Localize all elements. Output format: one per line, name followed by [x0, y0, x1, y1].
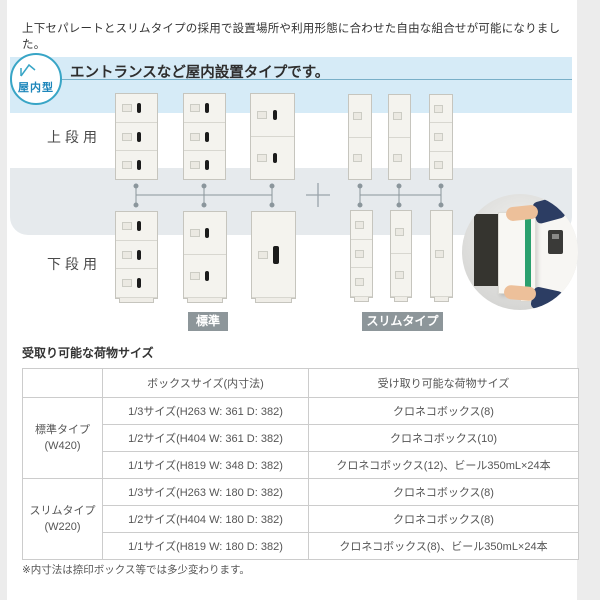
- upper-slim-cabinet-2door: [388, 94, 411, 180]
- door-label-sticker: [434, 161, 443, 169]
- table-row: 1/1サイズ(H819 W: 348 D: 382) クロネコボックス(12)、…: [23, 452, 579, 479]
- cargo-size-cell: クロネコボックス(8): [309, 398, 579, 425]
- table-row: 標準タイプ (W420) 1/3サイズ(H263 W: 361 D: 382) …: [23, 398, 579, 425]
- locker-door: [251, 94, 294, 137]
- box-size-cell: 1/3サイズ(H263 W: 180 D: 382): [103, 479, 309, 506]
- door-label-sticker: [395, 228, 404, 236]
- door-label-sticker: [393, 154, 402, 162]
- cabinet-base: [119, 298, 154, 303]
- door-label-sticker: [122, 104, 132, 112]
- door-label-sticker: [257, 111, 267, 119]
- locker-door: [184, 212, 226, 255]
- cargo-size-table: ボックスサイズ(内寸法) 受け取り可能な荷物サイズ 標準タイプ (W420) 1…: [22, 368, 579, 560]
- box-size-cell: 1/1サイズ(H819 W: 180 D: 382): [103, 533, 309, 560]
- door-lock-slot: [137, 160, 141, 170]
- package-insertion-photo: [462, 194, 578, 310]
- locker-door: [389, 138, 410, 180]
- cabinet-base: [394, 297, 408, 302]
- door-label-sticker: [122, 222, 132, 230]
- door-label-sticker: [393, 112, 402, 120]
- photo-package-box: [498, 212, 536, 294]
- locker-door: [430, 123, 452, 151]
- table-header-row: ボックスサイズ(内寸法) 受け取り可能な荷物サイズ: [23, 369, 579, 398]
- door-label-sticker: [190, 272, 200, 280]
- door-label-sticker: [190, 161, 200, 169]
- group-name: スリムタイプ: [30, 505, 96, 517]
- cabinet-base: [187, 298, 223, 303]
- locker-door: [430, 95, 452, 123]
- door-label-sticker: [435, 250, 444, 258]
- lower-slim-cabinet-1door: [430, 210, 453, 298]
- header-cargo-size: 受け取り可能な荷物サイズ: [309, 369, 579, 398]
- locker-door: [116, 151, 157, 179]
- locker-door: [389, 95, 410, 138]
- page-left-margin: [0, 0, 7, 600]
- upper-slim-cabinet-3door: [429, 94, 453, 180]
- header-type: [23, 369, 103, 398]
- locker-door: [184, 123, 225, 152]
- table-row: 1/2サイズ(H404 W: 361 D: 382) クロネコボックス(10): [23, 425, 579, 452]
- door-label-sticker: [395, 271, 404, 279]
- indoor-type-badge: 屋内型: [10, 53, 62, 105]
- door-label-sticker: [355, 221, 364, 229]
- locker-door: [430, 152, 452, 179]
- table-row: 1/2サイズ(H404 W: 180 D: 382) クロネコボックス(8): [23, 506, 579, 533]
- locker-door: [351, 211, 372, 240]
- lower-slim-cabinet-3door: [350, 210, 373, 298]
- locker-door: [349, 138, 371, 180]
- upper-slim-cabinet-2door: [348, 94, 372, 180]
- locker-door: [184, 255, 226, 298]
- group-slim-cell: スリムタイプ (W220): [23, 479, 103, 560]
- door-lock-slot: [137, 103, 141, 113]
- door-lock-slot: [205, 132, 209, 142]
- door-label-sticker: [190, 229, 200, 237]
- intro-text: 上下セパレートとスリムタイプの採用で設置場所や利用形態に合わせた自由な組合せが可…: [22, 20, 578, 52]
- door-label-sticker: [190, 133, 200, 141]
- lower-slim-cabinet-2door: [390, 210, 412, 298]
- door-lock-slot: [137, 278, 141, 288]
- door-lock-slot: [137, 132, 141, 142]
- door-lock-slot: [273, 246, 279, 264]
- box-size-cell: 1/2サイズ(H404 W: 361 D: 382): [103, 425, 309, 452]
- cabinet-base: [255, 298, 292, 303]
- cargo-size-cell: クロネコボックス(8)、ビール350mL×24本: [309, 533, 579, 560]
- door-label-sticker: [355, 250, 364, 258]
- photo-hand: [503, 285, 536, 302]
- door-lock-slot: [205, 103, 209, 113]
- door-label-sticker: [258, 251, 268, 259]
- section-title-underline: [62, 79, 572, 80]
- door-label-sticker: [122, 251, 132, 259]
- door-label-sticker: [434, 105, 443, 113]
- connector-lines: [100, 180, 480, 212]
- door-label-sticker: [353, 154, 362, 162]
- locker-door: [351, 268, 372, 297]
- locker-door: [116, 94, 157, 123]
- door-label-sticker: [355, 278, 364, 286]
- door-label-sticker: [122, 279, 132, 287]
- house-roof-icon: [19, 62, 41, 78]
- door-label-sticker: [190, 104, 200, 112]
- plus-icon: [306, 183, 330, 207]
- standard-type-badge: 標準: [188, 312, 228, 331]
- indoor-type-badge-label: 屋内型: [12, 79, 60, 95]
- box-size-cell: 1/3サイズ(H263 W: 361 D: 382): [103, 398, 309, 425]
- door-lock-slot: [273, 110, 277, 120]
- door-label-sticker: [122, 133, 132, 141]
- photo-keypad: [548, 230, 563, 254]
- cabinet-base: [354, 297, 369, 302]
- lower-row-label: 下段用: [47, 254, 101, 274]
- door-label-sticker: [353, 112, 362, 120]
- cabinet-base: [434, 297, 449, 302]
- locker-door: [431, 211, 452, 297]
- door-lock-slot: [205, 271, 209, 281]
- cargo-size-cell: クロネコボックス(12)、ビール350mL×24本: [309, 452, 579, 479]
- door-label-sticker: [434, 133, 443, 141]
- door-label-sticker: [257, 154, 267, 162]
- header-box-size: ボックスサイズ(内寸法): [103, 369, 309, 398]
- upper-row-label: 上段用: [47, 127, 101, 147]
- cargo-size-cell: クロネコボックス(8): [309, 479, 579, 506]
- table-footnote: ※内寸法は捺印ボックス等では多少変わります。: [22, 562, 250, 577]
- group-standard-cell: 標準タイプ (W420): [23, 398, 103, 479]
- locker-door: [391, 211, 411, 254]
- door-lock-slot: [205, 228, 209, 238]
- upper-standard-cabinet-3door: [115, 93, 158, 180]
- box-size-cell: 1/2サイズ(H404 W: 180 D: 382): [103, 506, 309, 533]
- locker-door: [116, 269, 157, 298]
- group-width: (W220): [44, 521, 80, 533]
- locker-door: [351, 240, 372, 269]
- group-width: (W420): [44, 440, 80, 452]
- locker-door: [184, 94, 225, 123]
- locker-door: [116, 241, 157, 270]
- locker-door: [116, 123, 157, 152]
- table-row: スリムタイプ (W220) 1/3サイズ(H263 W: 180 D: 382)…: [23, 479, 579, 506]
- door-lock-slot: [205, 160, 209, 170]
- group-name: 標準タイプ: [35, 424, 90, 436]
- lower-standard-cabinet-2door: [183, 211, 227, 299]
- upper-standard-cabinet-3door: [183, 93, 226, 180]
- locker-door: [391, 254, 411, 297]
- lower-standard-cabinet-3door: [115, 211, 158, 299]
- cargo-size-cell: クロネコボックス(10): [309, 425, 579, 452]
- door-lock-slot: [137, 221, 141, 231]
- lower-standard-cabinet-1door: [251, 211, 296, 299]
- locker-door: [349, 95, 371, 138]
- door-lock-slot: [273, 153, 277, 163]
- photo-package-stripe: [525, 213, 531, 293]
- locker-door: [184, 151, 225, 179]
- cargo-table-title: 受取り可能な荷物サイズ: [22, 344, 154, 361]
- box-size-cell: 1/1サイズ(H819 W: 348 D: 382): [103, 452, 309, 479]
- upper-standard-cabinet-2door: [250, 93, 295, 180]
- door-label-sticker: [122, 161, 132, 169]
- locker-door: [251, 137, 294, 179]
- locker-door: [252, 212, 295, 298]
- locker-door: [116, 212, 157, 241]
- cargo-size-cell: クロネコボックス(8): [309, 506, 579, 533]
- door-lock-slot: [137, 250, 141, 260]
- page-right-margin: [577, 0, 600, 600]
- table-row: 1/1サイズ(H819 W: 180 D: 382) クロネコボックス(8)、ビ…: [23, 533, 579, 560]
- slim-type-badge: スリムタイプ: [362, 312, 443, 331]
